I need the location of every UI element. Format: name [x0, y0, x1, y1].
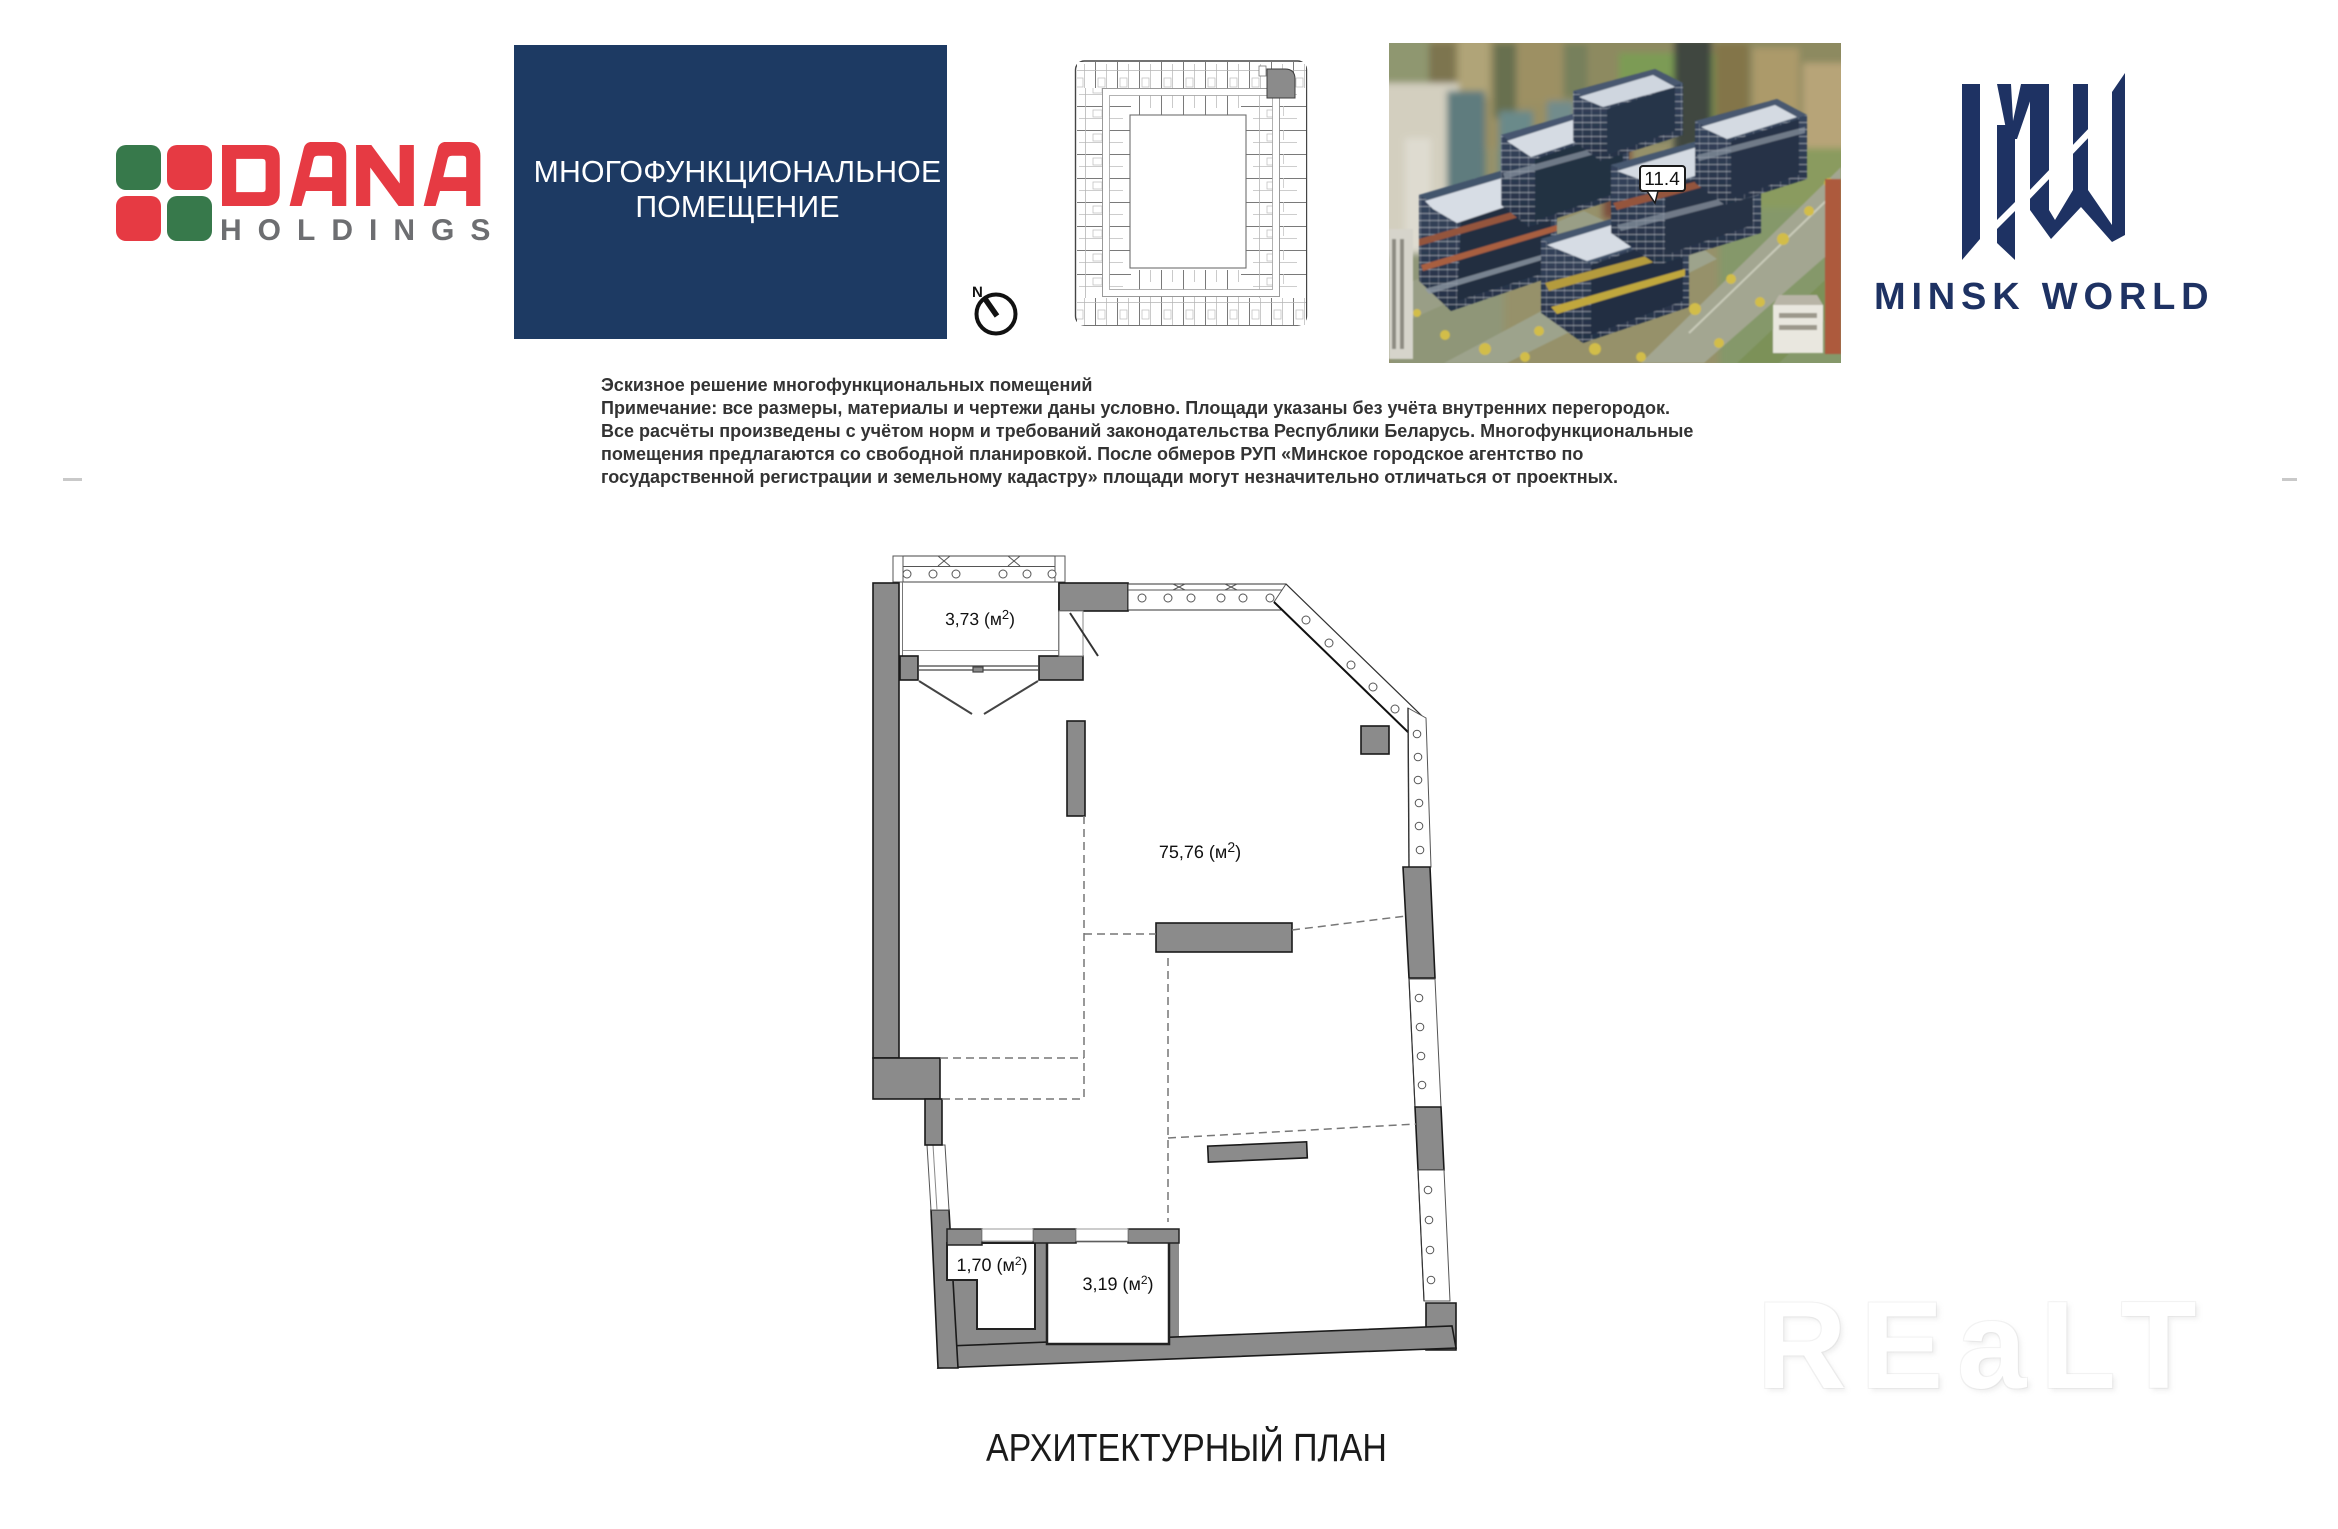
svg-text:3,73 (м2): 3,73 (м2) [945, 607, 1015, 629]
svg-text:MINSK WORLD: MINSK WORLD [1874, 276, 2214, 318]
svg-text:75,76 (м2): 75,76 (м2) [1159, 839, 1241, 862]
svg-text:HOLDINGS: HOLDINGS [220, 214, 506, 246]
svg-text:11.4: 11.4 [1644, 169, 1680, 190]
